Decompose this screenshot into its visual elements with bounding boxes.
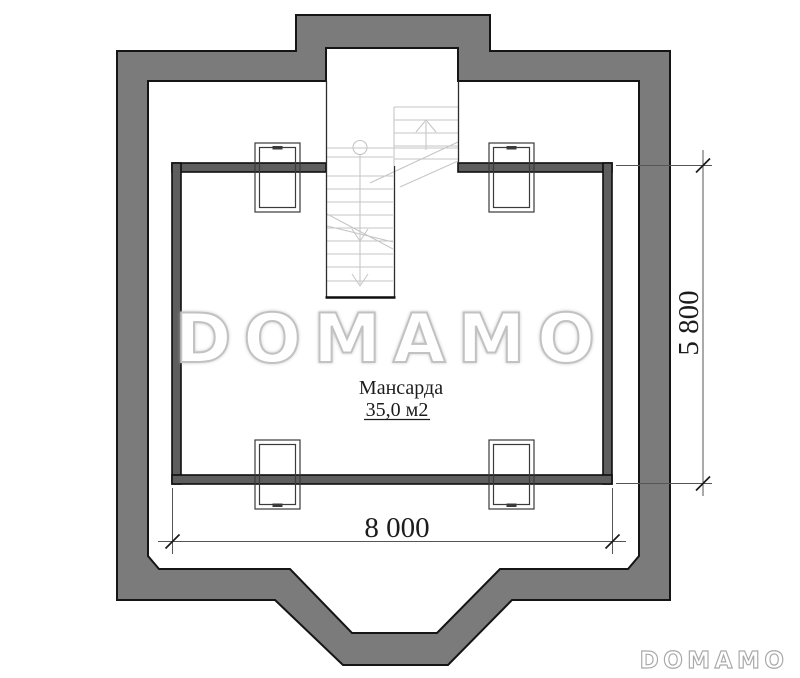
room-wall-top-right [458,163,612,172]
watermark-large: DOMAMO [175,300,607,379]
room-area-label: 35,0 м2 [366,399,429,421]
floor-plan-canvas: DOMAMO Мансарда 35,0 м2 8 000 5 800 DOMA… [0,0,800,678]
room-wall-top-left [172,163,326,172]
dim-height-label: 5 800 [673,290,705,355]
floor-plan-page: DOMAMO Мансарда 35,0 м2 8 000 5 800 DOMA… [0,0,800,678]
room-wall-bottom [172,475,612,484]
watermark-small: DOMAMO [640,648,789,674]
room-name-label: Мансарда [359,377,443,399]
dim-width-label: 8 000 [364,512,429,544]
